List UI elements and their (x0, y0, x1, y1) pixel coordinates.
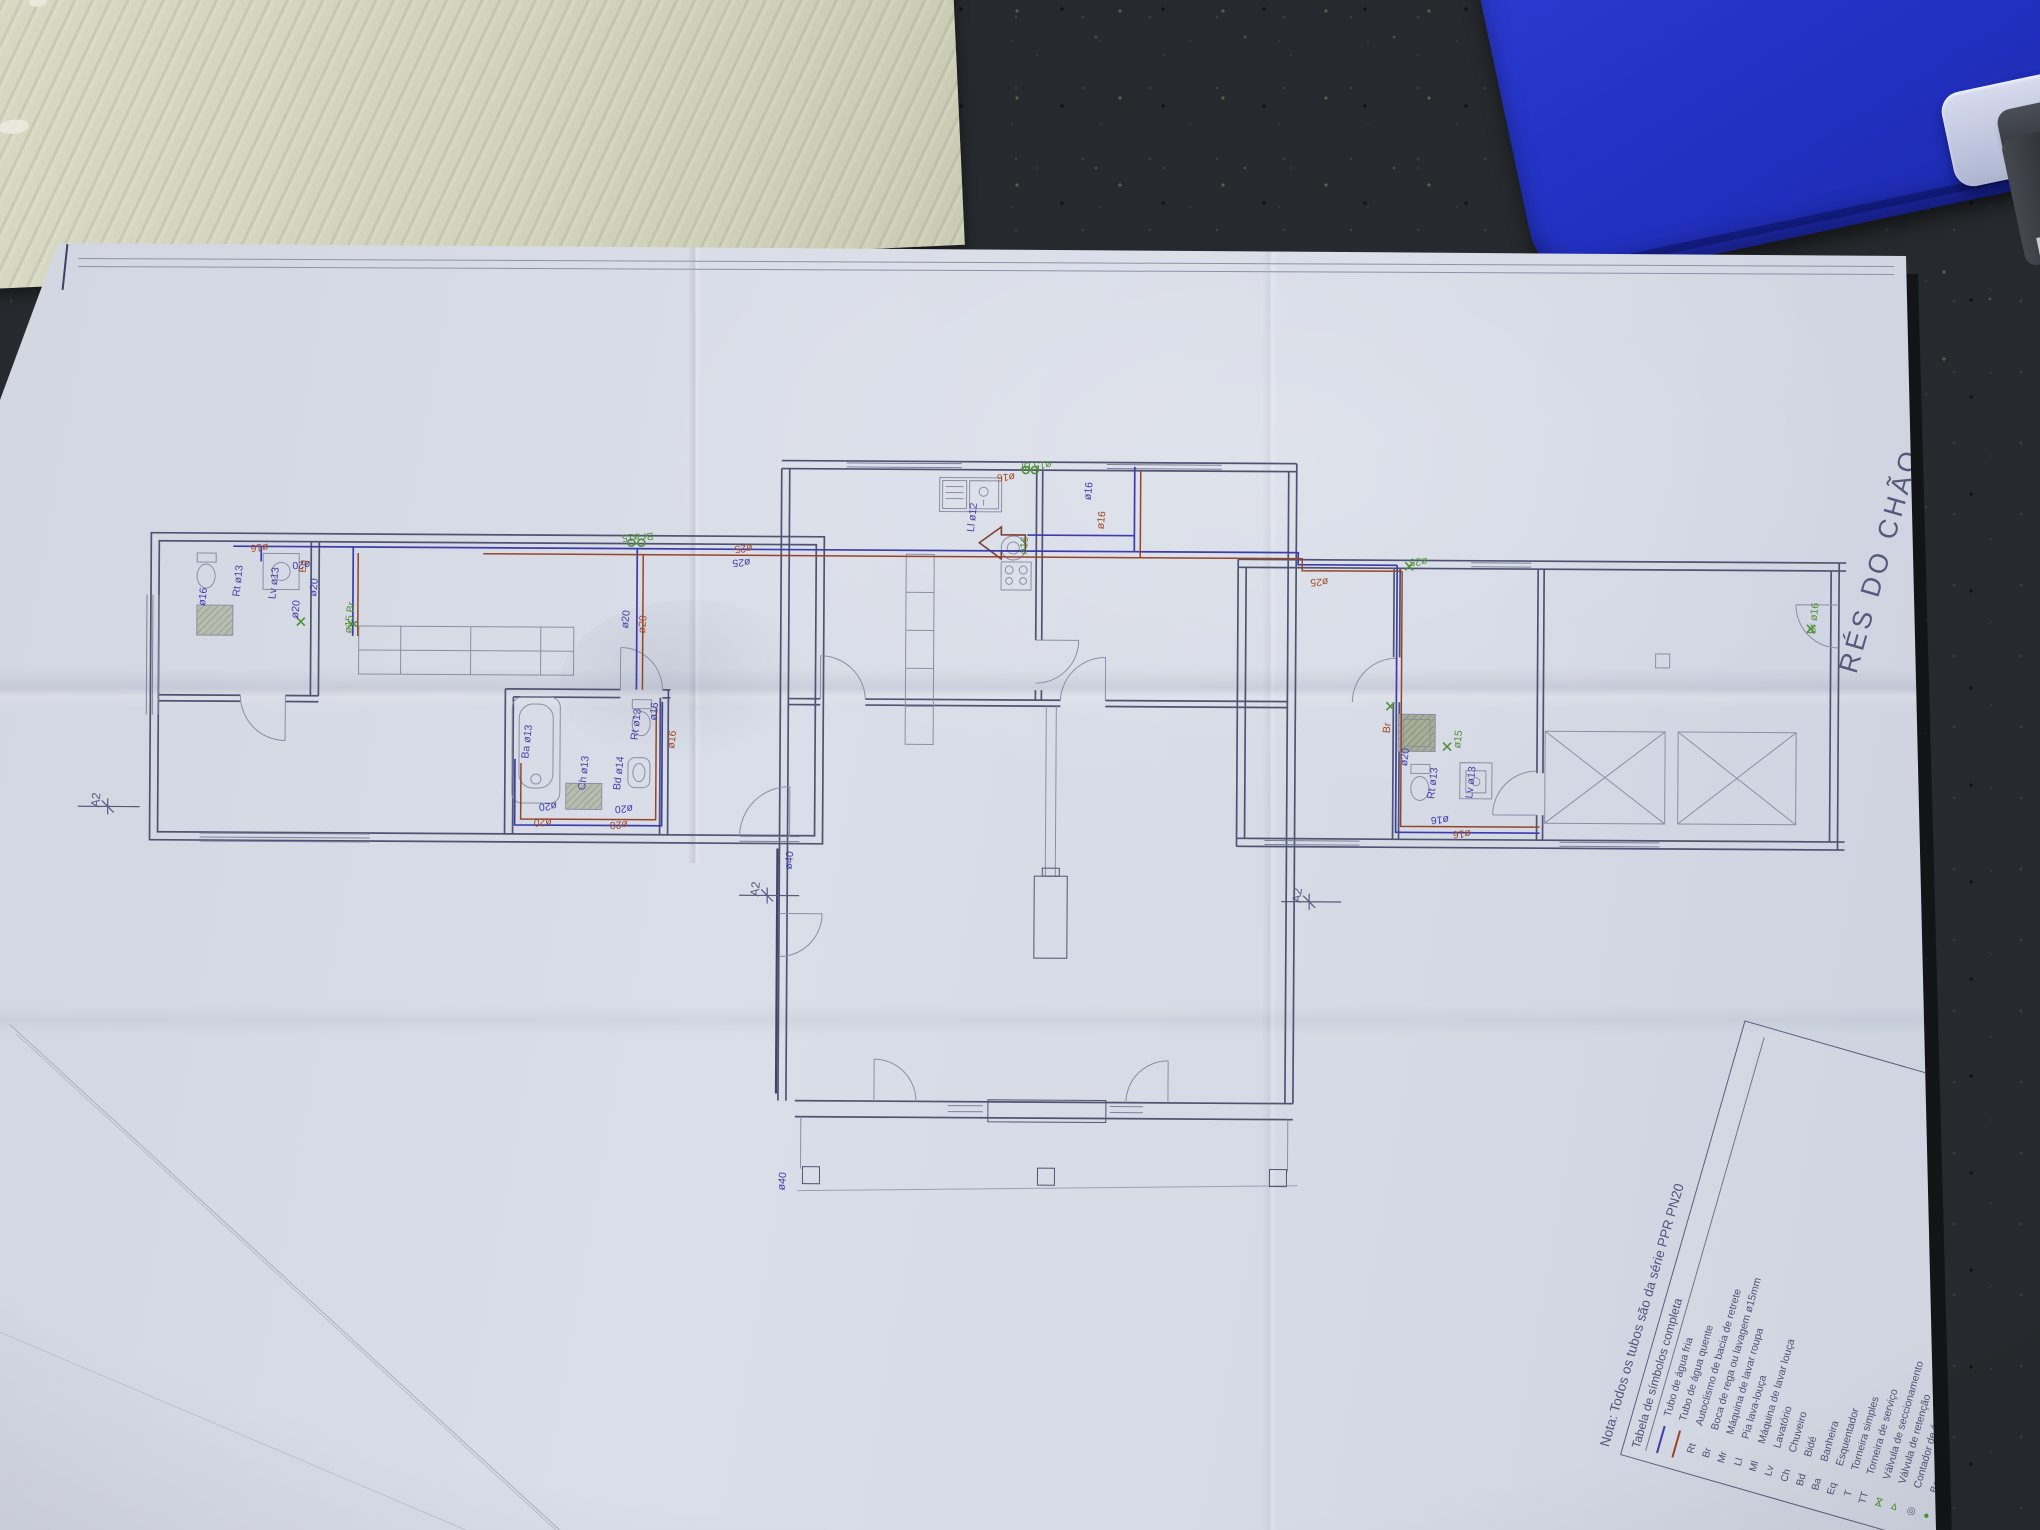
pipe-label: ø15 Br (1019, 458, 1052, 472)
pipe-label: ø16 (647, 702, 661, 721)
pipe-label: Rt ø13 (230, 564, 245, 597)
section-marker-label: A2 (88, 792, 104, 808)
pipe-label: Br (1381, 722, 1394, 734)
cold-water-pipes (232, 461, 1542, 833)
pipe-label: Br ø15 (621, 530, 653, 544)
paint-fleck (0, 119, 29, 134)
pipe-label: ø16 (996, 470, 1015, 483)
pipe-label: ø16 (250, 541, 269, 554)
section-marker-label: A2 (747, 881, 763, 897)
pipe-label: Ba ø13 (519, 724, 535, 759)
pipe-label: ø20 (533, 816, 552, 829)
pipe-label: ø20 (307, 578, 321, 597)
pipe-label: ø20 (289, 599, 303, 618)
section-markers (77, 798, 1342, 910)
photo-of-blueprint-scene: ø16ø20Rt ø13Lv ø13ø16Eqø20ø20ø15 BrBr ø1… (0, 0, 2040, 1530)
pipe-label: ø16 (196, 587, 210, 606)
pipe-label: ø16 (1017, 536, 1031, 555)
pipe-label: ø25 (1310, 575, 1329, 588)
pipe-label: ø40 (782, 850, 796, 869)
door-arcs (238, 595, 1839, 1107)
drain-pipe (776, 849, 777, 1094)
pipe-label: ø15 Br (342, 601, 357, 634)
pipe-label: Bd ø14 (611, 756, 627, 791)
pipe-label: ø15 (1451, 730, 1465, 749)
pipe-label: ø20 (614, 802, 633, 815)
paint-fleck (29, 0, 47, 7)
pipe-label: ø40 (775, 1171, 789, 1190)
pipe-label: Lv ø13 (266, 566, 281, 599)
pipe-label: ø16 (1082, 481, 1096, 500)
hot-water-pipes (357, 466, 1542, 827)
pipe-label: Lv ø13 (1463, 766, 1478, 799)
fixtures (193, 473, 1797, 1197)
pipe-label: ø25 (734, 542, 753, 555)
pipe-label: ø20 (636, 615, 650, 634)
pipe-label: ø16 (665, 730, 679, 749)
pipe-label: ø25 (732, 556, 751, 569)
pipe-label: Ll ø12 (965, 502, 980, 532)
section-marker-label: A2 (1289, 887, 1305, 903)
pipe-label: ø20 (609, 818, 628, 831)
pipe-label: Eq (297, 559, 310, 573)
pipe-label: Rt ø13 (1425, 767, 1440, 800)
pipe-label: ø25 (1409, 555, 1428, 568)
pipe-label: ø16 (1452, 827, 1471, 840)
pipe-label: ø20 (538, 800, 557, 813)
pipe-label: Br ø16 (1806, 602, 1821, 635)
pipe-label: ø20 (1398, 747, 1412, 766)
pipe-label: ø16 (1095, 510, 1109, 529)
pipe-label: ø20 (619, 609, 633, 628)
pipe-label: ø16 (1430, 813, 1449, 826)
